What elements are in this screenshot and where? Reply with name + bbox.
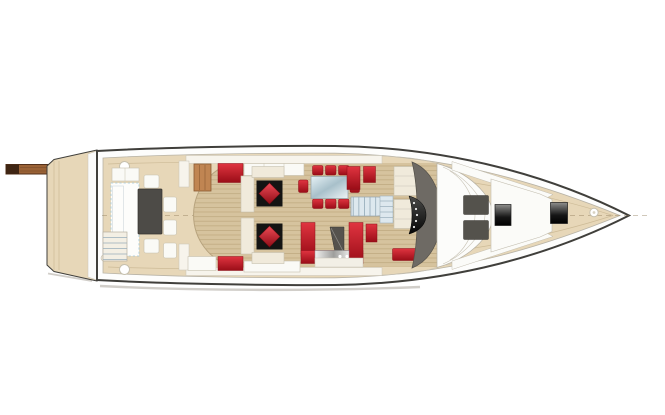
lounge-sofa [252, 167, 284, 178]
dining-chair [299, 180, 309, 193]
yacht-plan-svg [0, 0, 665, 415]
aft-dining-chair [164, 220, 177, 235]
aft-dining-chair [164, 197, 177, 212]
cabin-wall-port [186, 156, 382, 164]
dining-chair [326, 199, 337, 209]
sideboard-red-port [218, 164, 243, 183]
windlass-icon [551, 203, 568, 224]
aft-dining-table [138, 189, 162, 234]
aft-dining-chair [144, 175, 159, 188]
galley-cabinet-white [315, 258, 363, 267]
dining-chair [339, 199, 350, 209]
aft-dining-chair [164, 243, 177, 258]
sunpad-gray [464, 196, 489, 215]
dining-chair [313, 199, 324, 209]
transom-band [88, 151, 97, 280]
side-deck-steps [380, 196, 393, 223]
passerelle-tip [6, 165, 19, 175]
aft-bulkhead-port [179, 161, 189, 187]
deck-hatch-icon [120, 265, 130, 275]
dining-chair [326, 166, 337, 176]
transom-steps [103, 232, 127, 261]
aft-dining-chair [144, 239, 159, 253]
aft-sideboard [112, 168, 139, 181]
burner-icon [345, 255, 348, 258]
lounge-sofa [241, 218, 254, 254]
burner-icon [338, 255, 341, 258]
lounge-sofa [252, 253, 284, 264]
hull-shadow [100, 286, 420, 290]
cabinet-red [364, 167, 376, 183]
yacht-deck-plan [0, 0, 665, 415]
swim-platform [47, 150, 97, 281]
sideboard-red-starboard [218, 257, 243, 271]
aft-bulkhead-starboard [179, 244, 189, 270]
galley-cabinet-red [366, 224, 377, 242]
wood-cabinet [194, 164, 211, 191]
cabinet-red [347, 167, 360, 190]
lounge-sofa [241, 176, 254, 212]
windlass-icon [495, 205, 511, 226]
galley-counter-red [349, 223, 363, 264]
dining-table-glass [311, 177, 348, 199]
dining-chair [313, 166, 324, 176]
sunpad-gray [464, 221, 489, 240]
bench-white-starboard [188, 257, 216, 271]
bow-fitting-dot [593, 211, 596, 214]
